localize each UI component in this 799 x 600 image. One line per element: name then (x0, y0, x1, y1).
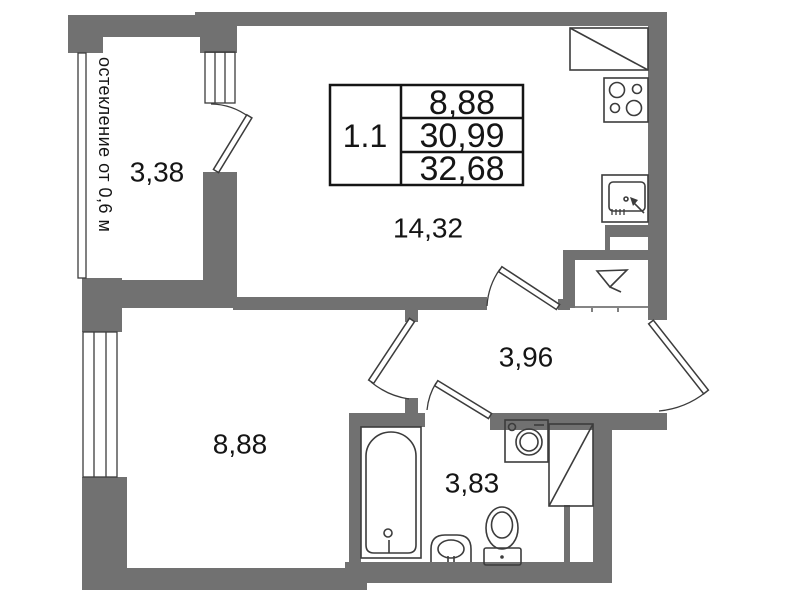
kitchen-sink-icon (602, 175, 648, 222)
wall-corner-top-left (68, 15, 103, 53)
cabinet-icon (549, 424, 593, 506)
wall-right (648, 12, 667, 320)
bedroom-door (369, 318, 415, 399)
wall-bedroom-door-stub-bottom (405, 398, 418, 413)
floor-plan-drawing: 1.1 8,88 30,99 32,68 3,38 14,32 8,88 3,9… (0, 0, 799, 600)
unit-area-row-3: 32,68 (419, 150, 504, 188)
balcony-glazing-window (78, 53, 86, 278)
unit-id: 1.1 (343, 118, 387, 154)
wall-niche-divider-bottom-right (564, 505, 570, 563)
wall-bottom-bathroom (345, 562, 612, 583)
hallway-area-label: 3,96 (499, 342, 554, 373)
unit-info-table: 1.1 8,88 30,99 32,68 (330, 84, 523, 188)
wall-hallway-bottom (490, 413, 667, 430)
bathroom-door (427, 381, 492, 419)
balcony-area-label: 3,38 (130, 157, 185, 188)
wall-pier-above-balcony-window (200, 26, 237, 53)
balcony-window (205, 52, 235, 103)
wall-left-mid-block (82, 278, 122, 332)
kitchen-fixtures (570, 28, 648, 312)
stove-icon (604, 78, 648, 122)
bathroom-area-label: 3,83 (445, 468, 500, 499)
wall-below-sink (605, 225, 650, 237)
wall-bathroom-right (593, 430, 612, 583)
bedroom-window (83, 332, 117, 477)
toilet-icon (484, 507, 521, 565)
living-kitchen-area-label: 14,32 (393, 213, 463, 244)
balcony-door (211, 104, 252, 173)
living-room-door (487, 267, 560, 310)
glazing-note-label: остекление от 0,6 м (95, 57, 115, 232)
bedroom-area-label: 8,88 (213, 429, 268, 460)
fridge-icon (570, 28, 648, 70)
ventilation-shaft-icon (575, 270, 648, 312)
wall-bedroom-bathroom-divider (349, 413, 361, 565)
wall-niche-left-edge (605, 225, 610, 260)
wall-bottom-bedroom (82, 568, 367, 590)
wall-partition-main (233, 297, 487, 310)
entrance-door (649, 320, 709, 411)
washbasin-icon (431, 535, 471, 562)
floor-plan: 1.1 8,88 30,99 32,68 3,38 14,32 8,88 3,9… (0, 0, 799, 600)
bathtub-icon (361, 427, 421, 558)
wall-top-main (195, 12, 667, 26)
